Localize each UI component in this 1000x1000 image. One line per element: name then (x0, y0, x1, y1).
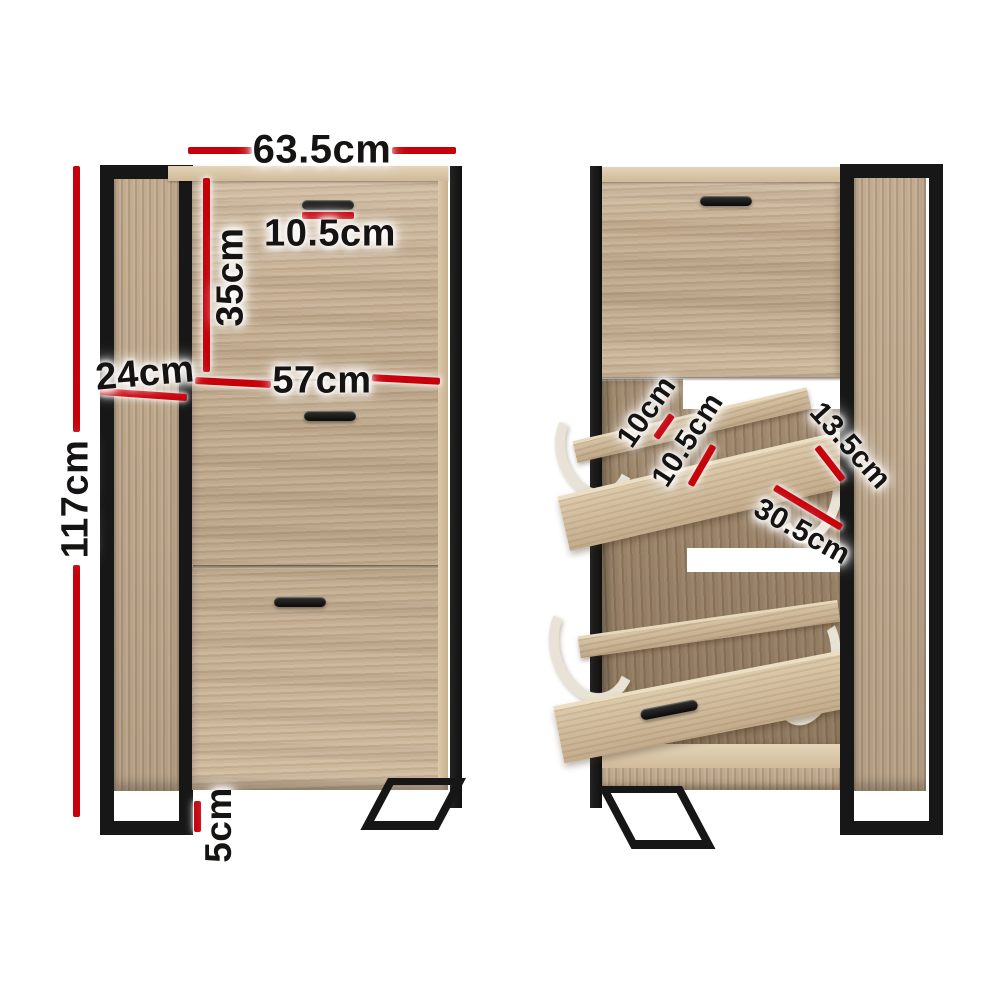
dim-label-leg-height: 5cm (198, 787, 240, 863)
door-seam-bottom (193, 565, 438, 569)
rear-frame-post-left-cabinet (450, 166, 462, 808)
top-door-closed (601, 181, 840, 377)
product-dimension-diagram: 63.5cm 10.5cm 35cm 24cm 57cm 117cm 5cm 1… (0, 0, 1000, 1000)
dim-label-handle-width: 10.5cm (264, 213, 396, 256)
dim-label-overall-height: 117cm (55, 440, 98, 559)
handle-flip-door-lower (640, 699, 699, 721)
handle-top-door (302, 200, 354, 210)
dim-line-width-left (188, 147, 252, 154)
cabinet-top-edge-right (601, 167, 840, 182)
dim-label-inner-width: 57cm (272, 360, 371, 403)
dim-line-height-lower (73, 565, 80, 817)
dim-label-overall-width: 63.5cm (253, 128, 392, 173)
dim-label-top-door-height: 35cm (210, 227, 253, 326)
front-left-leg-right-cabinet (598, 786, 715, 849)
dim-line-height-upper (73, 166, 80, 432)
handle-middle-door (304, 411, 356, 421)
side-panel-left (114, 179, 179, 791)
dim-line-width-right (392, 147, 456, 154)
top-door-bottom-seam (601, 377, 840, 381)
handle-bottom-door (274, 597, 326, 607)
dim-label-depth: 24cm (94, 348, 197, 399)
handle-top-door-right-cabinet (700, 196, 752, 206)
cabinet-right-edge-board (438, 181, 448, 781)
